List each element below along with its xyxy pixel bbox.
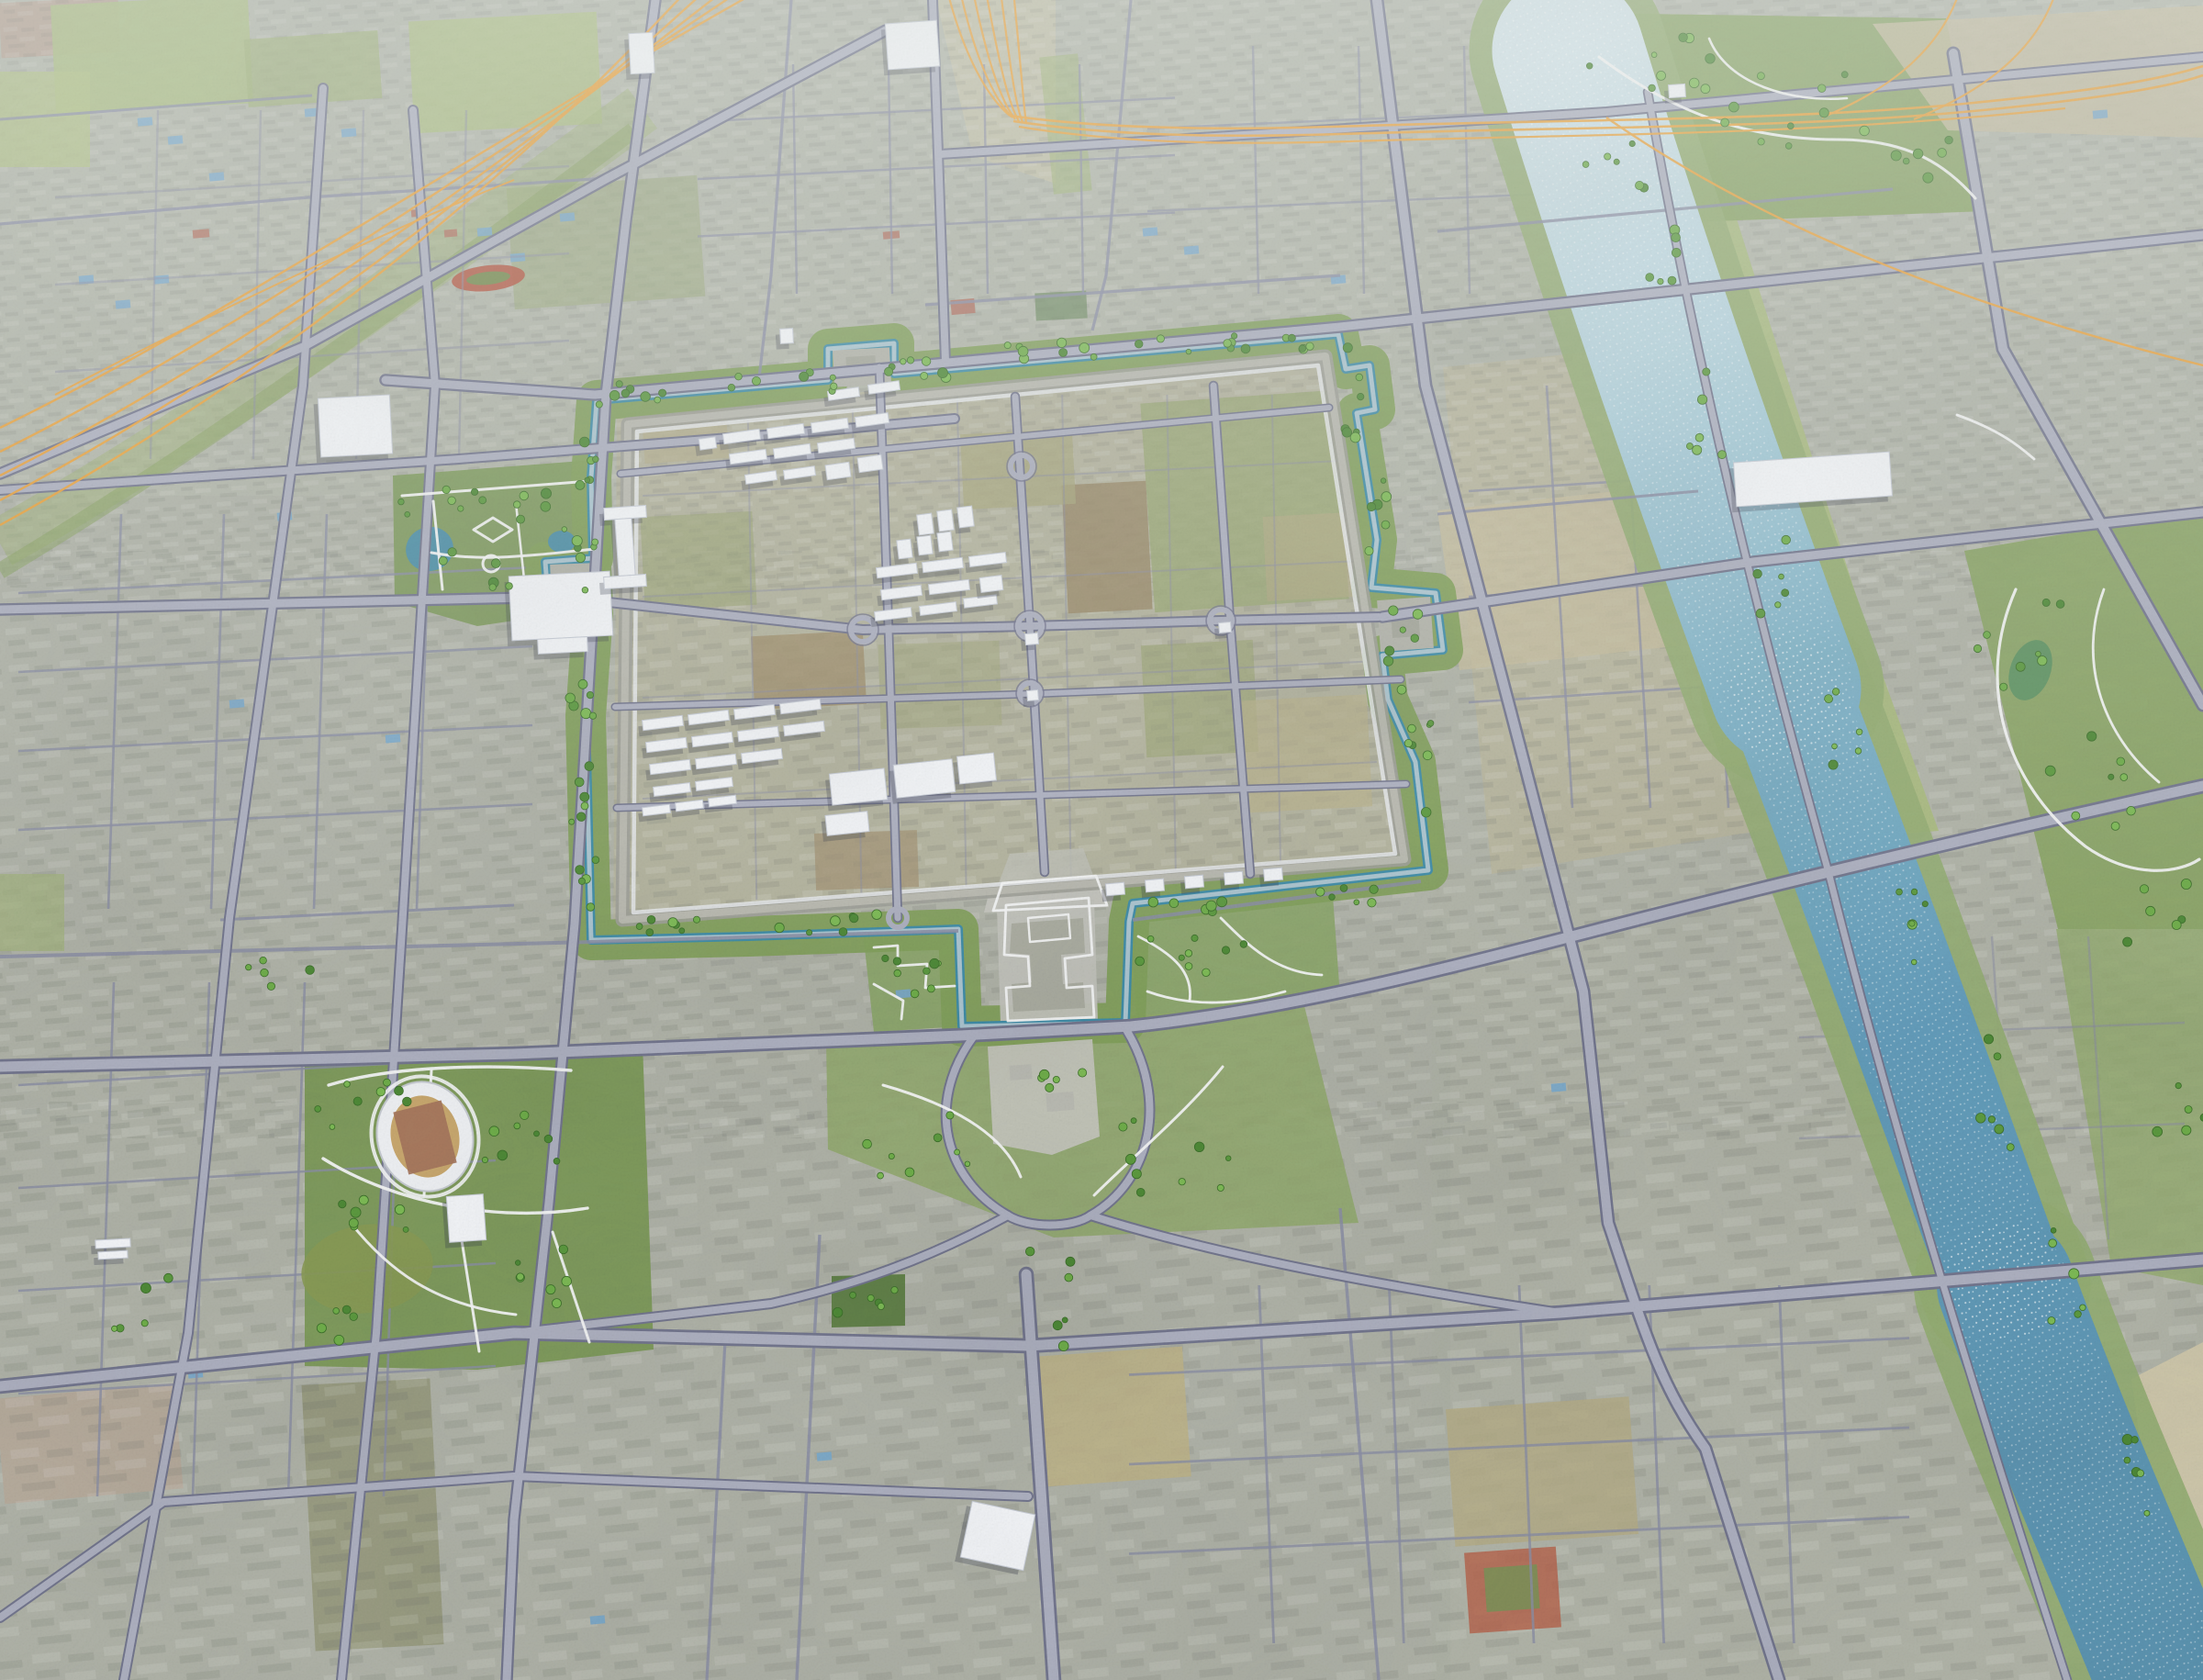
map-viewport[interactable] — [0, 0, 2203, 1680]
atmosphere-haze — [0, 0, 2203, 1680]
map-layers — [0, 0, 2203, 1680]
map-canvas[interactable] — [0, 0, 2203, 1680]
